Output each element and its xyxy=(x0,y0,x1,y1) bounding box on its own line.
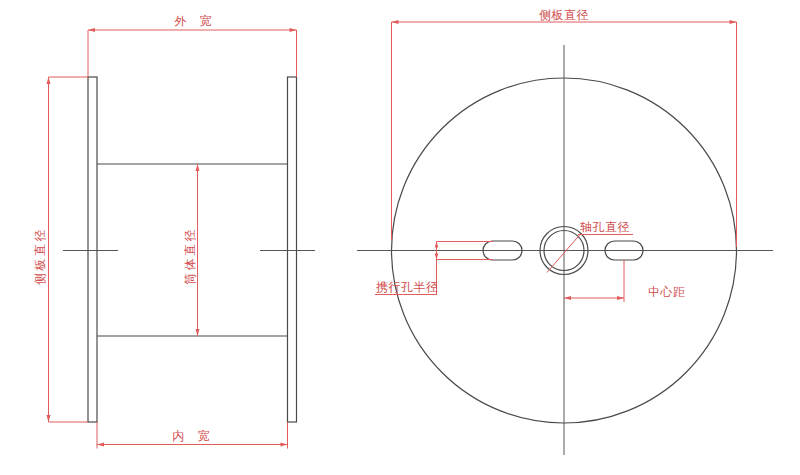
dim-side-plate-diameter-left-linework xyxy=(47,77,89,422)
dim-center-distance-linework xyxy=(564,260,624,302)
dim-label-side-plate-diameter-left: 侧板直径 xyxy=(33,220,47,292)
dim-label-side-plate-diameter-front: 侧板直径 xyxy=(524,9,604,22)
leader-axle-hole-diameter-linework xyxy=(547,235,633,273)
dim-outer-width-linework xyxy=(88,28,297,77)
drawing-linework xyxy=(0,0,800,475)
dim-label-center-distance: 中心距 xyxy=(648,286,686,299)
spool-front-view-geometry xyxy=(357,45,773,455)
right-flange xyxy=(288,77,297,422)
drawing-canvas: 外 宽 内 宽 侧板直径 筒体直径 侧板直径 轴孔直径 携行孔半径 中心距 xyxy=(0,0,800,475)
dim-label-inner-width: 内 宽 xyxy=(158,430,224,443)
dim-label-outer-width: 外 宽 xyxy=(160,15,226,28)
dim-label-axle-hole-diameter: 轴孔直径 xyxy=(580,221,630,234)
dim-label-carry-hole-radius: 携行孔半径 xyxy=(376,281,439,294)
dim-label-barrel-diameter: 筒体直径 xyxy=(183,220,197,292)
left-flange xyxy=(88,77,97,422)
